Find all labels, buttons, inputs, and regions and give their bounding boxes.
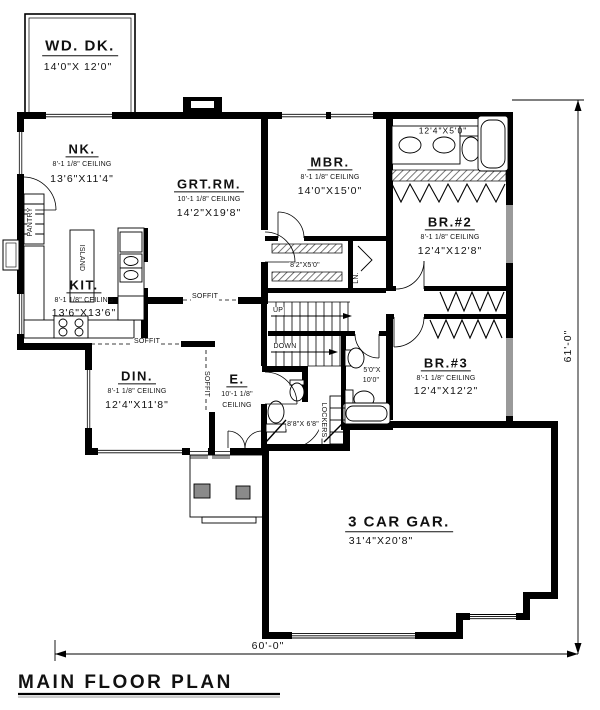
bed3-size: 12'4"X12'2" (414, 386, 479, 398)
dining-size: 12'4"X11'8" (105, 400, 169, 412)
soffit-dining-label: SOFFIT (133, 338, 161, 346)
entry-label: E. (226, 372, 247, 387)
island-label: ISLAND (77, 244, 85, 273)
stairs-down-label: DOWN (273, 343, 298, 351)
nook-size: 13'6"X11'4" (50, 174, 114, 186)
hall-bath-size-1: 5'0"X (362, 367, 381, 375)
garage-doors (292, 613, 516, 639)
bed2-ceiling: 8'-1 1/8" CEILING (421, 234, 480, 242)
hall-bath-fixtures (343, 348, 390, 424)
nook-ceiling: 8'-1 1/8" CEILING (53, 161, 112, 169)
soffit-dining-v-label: SOFFIT (202, 370, 210, 398)
bed2-size: 12'4"X12'8" (418, 246, 483, 258)
nook-label: NK. (66, 142, 99, 157)
garage-label: 3 CAR GAR. (345, 514, 453, 532)
stairs-up-label: UP (272, 307, 284, 315)
great-room-size: 14'2"X19'8" (177, 208, 242, 220)
entry-ceiling-2: CEILING (222, 402, 251, 410)
great-room-ceiling: 10'-1 1/8" CEILING (177, 196, 240, 204)
garage-size: 31'4"X20'8" (349, 536, 414, 548)
mud-room-size: 8'8"X 6'8" (286, 421, 320, 429)
dimension-width: 60'-0" (252, 641, 285, 653)
master-ceiling: 8'-1 1/8" CEILING (301, 174, 360, 182)
bed3-label: BR.#3 (421, 356, 471, 371)
entry-ceiling-1: 10'-1 1/8" (221, 391, 253, 399)
floor-plan: WD. DK. 14'0"X 12'0" NK. 8'-1 1/8" CEILI… (0, 0, 600, 710)
walkin-closet-size: 8'2"X5'0" (289, 262, 321, 270)
bed2-label: BR.#2 (425, 215, 475, 230)
deck-label: WD. DK. (42, 38, 118, 56)
master-label: MBR. (307, 155, 352, 170)
master-bath-size: 12'4"X5'0" (419, 126, 468, 135)
master-size: 14'0"X15'0" (298, 186, 363, 198)
kitchen-label: KIT. (66, 278, 101, 293)
kitchen-ceiling: 8'-1 1/8" CEILING (55, 297, 114, 305)
deck-size: 14'0"X 12'0" (44, 62, 112, 74)
chimney-inner (191, 101, 214, 108)
floorplan-drawing (0, 0, 600, 710)
dining-label: DIN. (118, 369, 156, 384)
hall-bath-size-2: 10'0" (362, 377, 381, 385)
porch (190, 455, 264, 523)
dining-ceiling: 8'-1 1/8" CEILING (108, 388, 167, 396)
kitchen-size: 13'6"X13'6" (52, 308, 117, 320)
pantry-label: PANTRY (27, 207, 35, 238)
soffit-great-label: SOFFIT (191, 293, 219, 301)
dimension-height: 61'-0" (563, 330, 575, 363)
lockers-label: LOCKERS (319, 402, 327, 439)
plan-title: MAIN FLOOR PLAN (18, 672, 233, 694)
title-underline (18, 694, 280, 697)
linen-label: LN. (353, 271, 361, 285)
bed3-ceiling: 8'-1 1/8" CEILING (417, 375, 476, 383)
great-room-label: GRT.RM. (174, 177, 244, 192)
master-bath-fixtures (392, 116, 508, 171)
